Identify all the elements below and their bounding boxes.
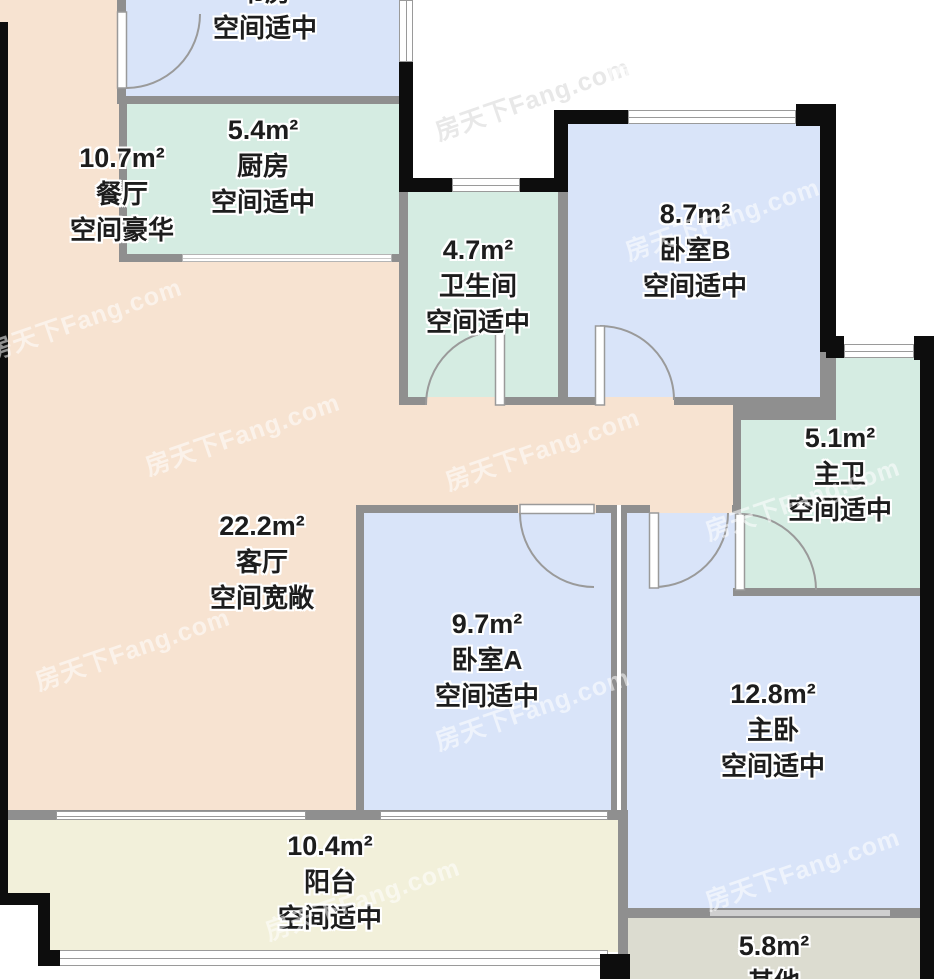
room-desc: 空间适中 bbox=[213, 10, 317, 46]
room-name: 主卧 bbox=[721, 712, 825, 748]
room-desc: 空间适中 bbox=[278, 900, 382, 936]
room-label-study: 书房 空间适中 bbox=[213, 0, 317, 46]
room-area: 5.8m² bbox=[739, 928, 810, 964]
room-area: 9.7m² bbox=[435, 606, 539, 642]
room-name: 阳台 bbox=[278, 864, 382, 900]
room-area: 12.8m² bbox=[721, 676, 825, 712]
room-area: 4.7m² bbox=[426, 232, 530, 268]
room-desc: 空间适中 bbox=[426, 304, 530, 340]
room-area: 5.4m² bbox=[211, 112, 315, 148]
room-area: 8.7m² bbox=[643, 196, 747, 232]
room-name: 卫生间 bbox=[426, 268, 530, 304]
room-desc: 空间适中 bbox=[788, 492, 892, 528]
door-arc-bedroom-a bbox=[520, 513, 594, 587]
room-name: 卧室A bbox=[435, 642, 539, 678]
room-label-master-bath: 5.1m² 主卫 空间适中 bbox=[788, 420, 892, 528]
room-name: 书房 bbox=[213, 0, 317, 10]
room-desc: 空间适中 bbox=[721, 748, 825, 784]
room-desc: 空间适中 bbox=[435, 678, 539, 714]
door-arc-bedroom-b bbox=[600, 326, 674, 400]
room-label-bedroom-b: 8.7m² 卧室B 空间适中 bbox=[643, 196, 747, 304]
door-leaf-bedroom-a bbox=[520, 505, 594, 514]
room-name: 卧室B bbox=[643, 232, 747, 268]
room-area: 10.7m² bbox=[70, 140, 174, 176]
door-arc-study bbox=[126, 14, 200, 88]
room-name: 客厅 bbox=[210, 544, 314, 580]
floorplan: 书房 空间适中 10.7m² 餐厅 空间豪华 5.4m² 厨房 空间适中 4.7… bbox=[0, 0, 934, 979]
room-label-dining: 10.7m² 餐厅 空间豪华 bbox=[70, 140, 174, 248]
door-leaf-study bbox=[118, 12, 127, 88]
door-leaf-master-bath bbox=[736, 514, 745, 590]
room-area: 5.1m² bbox=[788, 420, 892, 456]
room-name: 主卫 bbox=[788, 456, 892, 492]
room-label-kitchen: 5.4m² 厨房 空间适中 bbox=[211, 112, 315, 220]
room-area: 22.2m² bbox=[210, 508, 314, 544]
room-desc: 空间宽敞 bbox=[210, 580, 314, 616]
room-label-balcony: 10.4m² 阳台 空间适中 bbox=[278, 828, 382, 936]
room-label-other: 5.8m² 其他 bbox=[739, 928, 810, 979]
room-label-bathroom: 4.7m² 卫生间 空间适中 bbox=[426, 232, 530, 340]
room-name: 厨房 bbox=[211, 148, 315, 184]
room-label-bedroom-a: 9.7m² 卧室A 空间适中 bbox=[435, 606, 539, 714]
room-desc: 空间适中 bbox=[643, 268, 747, 304]
door-arc-bathroom bbox=[426, 331, 500, 405]
room-name: 餐厅 bbox=[70, 176, 174, 212]
room-desc: 空间适中 bbox=[211, 184, 315, 220]
door-leaf-bathroom bbox=[496, 331, 505, 405]
door-leaf-master-bedroom bbox=[650, 513, 659, 588]
room-area: 10.4m² bbox=[278, 828, 382, 864]
door-arc-master-bedroom bbox=[654, 513, 728, 587]
room-label-master-bedroom: 12.8m² 主卧 空间适中 bbox=[721, 676, 825, 784]
room-name: 其他 bbox=[739, 964, 810, 979]
room-desc: 空间豪华 bbox=[70, 212, 174, 248]
door-leaf-bedroom-b bbox=[596, 326, 605, 405]
room-label-living: 22.2m² 客厅 空间宽敞 bbox=[210, 508, 314, 616]
